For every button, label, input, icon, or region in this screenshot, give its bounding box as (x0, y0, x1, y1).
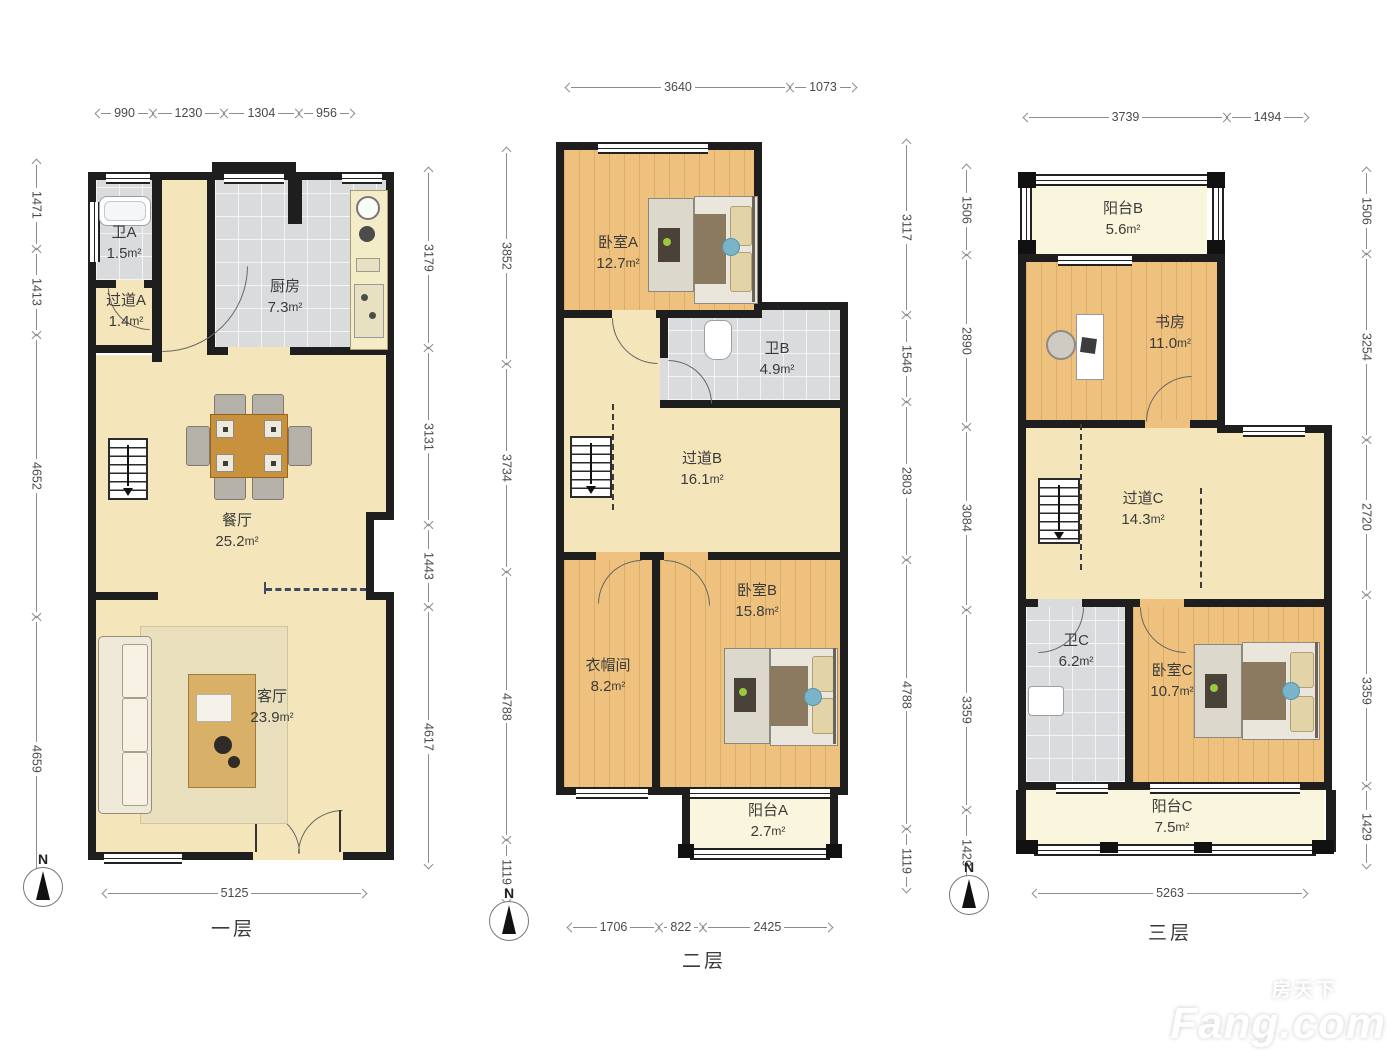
dim-line (1366, 708, 1367, 782)
compass-north-label: N (964, 860, 974, 875)
window (1020, 188, 1032, 240)
room-label: 过道C 14.3m² (1121, 488, 1164, 531)
arrow-up-icon (901, 828, 911, 838)
dim-line (906, 244, 907, 310)
room-label: 卧室B 15.8m² (735, 580, 778, 623)
arrow-up-icon (1361, 167, 1371, 177)
dim-value: 956 (313, 107, 340, 120)
wall (556, 310, 762, 318)
dim-value: 3084 (960, 501, 973, 535)
dim-line (695, 87, 785, 88)
dim-value: 2803 (900, 464, 913, 498)
arrow-up-icon (1361, 252, 1371, 262)
dim-value: 1471 (30, 188, 43, 222)
dimension-line-bottom: 17068222425 (568, 920, 832, 934)
arrow-right-icon (1300, 112, 1310, 122)
dim-line (906, 565, 907, 678)
stair-railing (1080, 424, 1082, 570)
dim-value: 3640 (661, 81, 695, 94)
pillar (1016, 840, 1038, 854)
dim-line (966, 260, 967, 324)
room-area: 7.5m² (1152, 817, 1193, 838)
dim-line (36, 340, 37, 459)
dim-value: 1413 (30, 275, 43, 309)
dim-segment: 956 (299, 107, 354, 120)
pillar (1194, 842, 1212, 853)
room-area: 1.4m² (106, 311, 146, 332)
arrow-right-icon (346, 108, 356, 118)
wall (1018, 420, 1225, 428)
dim-segment: 1546 (900, 315, 913, 402)
room-name: 衣帽间 (585, 655, 630, 676)
window (1056, 782, 1108, 794)
table-seat-icon (264, 420, 282, 438)
arrow-up-icon (961, 809, 971, 819)
arrow-up-icon (31, 159, 41, 169)
stove-dot-icon (361, 294, 368, 301)
room-name: 卧室C (1150, 660, 1193, 681)
room-label: 过道B 16.1m² (680, 448, 723, 491)
door-gap (612, 310, 656, 318)
door-gap (660, 358, 668, 400)
arrow-left-icon (297, 108, 307, 118)
arrow-left-icon (789, 82, 799, 92)
dim-line (906, 407, 907, 464)
dim-line (506, 369, 507, 452)
window (576, 787, 648, 799)
dim-value: 3179 (422, 241, 435, 275)
arrow-right-icon (1299, 888, 1309, 898)
dim-segment: 2425 (703, 921, 832, 934)
dim-value: 3254 (1360, 330, 1373, 364)
dimension-line-top: 37391494 (1024, 110, 1308, 124)
pillar (826, 844, 842, 858)
table-seat-icon (216, 420, 234, 438)
dim-value: 1506 (1360, 194, 1373, 228)
stairs-icon (1038, 478, 1080, 544)
dim-value: 1506 (960, 193, 973, 227)
wall (840, 302, 848, 795)
dim-segment: 3739 (1024, 111, 1227, 124)
room-name: 阳台A (748, 800, 788, 821)
floor-label: 一层 (211, 914, 255, 941)
pillar (678, 844, 694, 858)
floor-plan-sheet: 卫A 1.5m² 过道A 1.4m² 厨房 7.3m² 餐厅 25.2m² 客厅… (0, 0, 1400, 1050)
dim-segment: 3852 (500, 148, 513, 364)
door-gap (1038, 599, 1082, 607)
door-gap (116, 280, 144, 288)
room-name: 客厅 (250, 686, 293, 707)
floor-label: 二层 (682, 946, 726, 973)
dim-value: 1429 (1360, 810, 1373, 844)
arrow-left-icon (95, 108, 105, 118)
room-label: 阳台B 5.6m² (1103, 198, 1143, 241)
dim-line (906, 498, 907, 555)
balcony-opening (690, 787, 830, 799)
sink-icon (1028, 686, 1064, 716)
room-area: 15.8m² (735, 601, 778, 622)
dim-value: 5263 (1153, 887, 1187, 900)
pillar (1018, 172, 1036, 188)
pillow-icon (812, 656, 834, 692)
dim-value: 4652 (30, 459, 43, 493)
arrow-up-icon (961, 164, 971, 174)
dim-value: 3131 (422, 420, 435, 454)
room-name: 过道A (106, 290, 146, 311)
dim-line (1366, 445, 1367, 501)
dim-segment: 2720 (1360, 440, 1373, 595)
arrow-left-icon (657, 922, 667, 932)
door-leaf (339, 810, 341, 852)
room-label: 卧室C 10.7m² (1150, 660, 1193, 703)
stove-icon (354, 284, 384, 338)
dim-segment: 4652 (30, 335, 43, 617)
headboard-icon (833, 648, 836, 744)
stairs-icon (570, 436, 612, 498)
arrow-up-icon (901, 314, 911, 324)
arrow-left-icon (222, 108, 232, 118)
wall (1217, 254, 1225, 428)
dimension-line-top: 36401073 (566, 80, 856, 94)
dim-line (1142, 117, 1222, 118)
arrow-left-icon (565, 82, 575, 92)
room-name: 过道C (1121, 488, 1164, 509)
arrow-left-icon (701, 922, 711, 932)
dim-segment: 1706 (568, 921, 659, 934)
toilet-icon (704, 320, 732, 360)
arrow-up-icon (501, 571, 511, 581)
room-label: 阳台A 2.7m² (748, 800, 788, 843)
dim-line (428, 353, 429, 420)
wall (88, 172, 96, 860)
dim-line (506, 273, 507, 359)
window (104, 852, 182, 864)
arrow-left-icon (102, 888, 112, 898)
dim-segment: 1443 (422, 525, 435, 607)
wall (366, 512, 374, 600)
dim-line (506, 485, 507, 568)
dim-value: 3734 (500, 451, 513, 485)
room-area: 7.3m² (268, 297, 303, 318)
dimension-line-right: 15063254272033591429 (1358, 168, 1374, 868)
wardrobe-dot-icon (1210, 684, 1218, 692)
room-name: 厨房 (268, 276, 303, 297)
pillar (1100, 842, 1118, 853)
wall (88, 345, 160, 353)
room-label: 卧室A 12.7m² (596, 232, 639, 275)
room-label: 衣帽间 8.2m² (585, 655, 630, 698)
notch (374, 520, 386, 592)
compass: N (488, 886, 530, 941)
dim-value: 1119 (900, 845, 913, 877)
room-area: 23.9m² (250, 707, 293, 728)
dim-line (506, 723, 507, 835)
dimension-line-right: 3179313114434617 (420, 168, 436, 868)
dim-segment: 3359 (1360, 595, 1373, 787)
dimension-line-left: 15062890308433591429 (958, 165, 974, 895)
dim-line (906, 145, 907, 211)
table-seat-icon (264, 454, 282, 472)
bed-accent-icon (804, 688, 822, 706)
dim-value: 3359 (1360, 674, 1373, 708)
room-label: 书房 11.0m² (1149, 312, 1191, 355)
dim-segment: 3734 (500, 364, 513, 573)
room-name: 过道B (680, 448, 723, 469)
dim-value: 990 (111, 107, 138, 120)
dim-segment: 3254 (1360, 254, 1373, 440)
wall (1125, 599, 1133, 790)
compass-icon (23, 867, 63, 907)
arrow-up-icon (501, 147, 511, 157)
arrow-up-icon (1361, 785, 1371, 795)
window (224, 172, 284, 184)
room-name: 卫C (1059, 630, 1094, 651)
dim-line (966, 432, 967, 502)
chair-icon (186, 426, 210, 466)
arrow-down-icon (901, 884, 911, 894)
dim-line (1366, 259, 1367, 330)
dim-line (906, 711, 907, 824)
dim-value: 4617 (422, 720, 435, 754)
wall (152, 172, 162, 362)
sofa-cushion-icon (122, 698, 148, 752)
dim-segment: 822 (659, 921, 703, 934)
room-label: 阳台C 7.5m² (1152, 796, 1193, 839)
room-label: 卫B 4.9m² (760, 338, 795, 381)
arrow-right-icon (824, 922, 834, 932)
dim-line (428, 754, 429, 863)
door-gap (228, 347, 290, 355)
dim-segment: 4617 (422, 607, 435, 868)
arrow-left-icon (1225, 112, 1235, 122)
dim-segment: 1230 (153, 107, 224, 120)
watermark-cn: 房天下 (1170, 981, 1338, 1000)
bed-blanket-icon (770, 666, 808, 726)
dim-value: 1443 (422, 549, 435, 583)
chair-icon (252, 476, 284, 500)
dim-line (571, 87, 661, 88)
dim-line (428, 453, 429, 520)
dimension-line-right: 31171546280347881119 (898, 140, 914, 892)
dim-value: 2425 (750, 921, 784, 934)
dim-segment: 4788 (500, 572, 513, 840)
dim-value: 1494 (1251, 111, 1285, 124)
wardrobe-dot-icon (663, 238, 671, 246)
dim-line (506, 577, 507, 689)
door-gap (664, 552, 708, 560)
dimension-line-top: 99012301304956 (96, 106, 354, 120)
arrow-up-icon (501, 362, 511, 372)
dim-value: 822 (667, 921, 694, 934)
room-name: 餐厅 (215, 510, 258, 531)
arrow-up-icon (31, 334, 41, 344)
dimension-line-left: 1471141346524659 (28, 160, 44, 900)
compass-north-label: N (504, 886, 514, 901)
dim-line (108, 893, 218, 894)
wall (386, 592, 394, 860)
room-area: 2.7m² (748, 821, 788, 842)
dim-segment: 990 (96, 107, 153, 120)
dim-segment: 2890 (960, 255, 973, 427)
sink-icon (356, 196, 380, 220)
tray-icon (196, 694, 232, 722)
room-area: 8.2m² (585, 676, 630, 697)
dim-value: 4788 (500, 690, 513, 724)
stair-railing (612, 404, 614, 510)
room-area: 14.3m² (1121, 509, 1164, 530)
arrow-up-icon (961, 253, 971, 263)
dim-segment: 4788 (900, 560, 913, 829)
dim-line (966, 535, 967, 605)
stove-dot-icon (369, 312, 376, 319)
window (1058, 254, 1132, 266)
watermark: 房天下 Fang.com (1170, 981, 1386, 1046)
chair-icon (214, 476, 246, 500)
compass-icon (949, 875, 989, 915)
dim-value: 3852 (500, 239, 513, 273)
burner-icon (359, 226, 375, 242)
wardrobe-dot-icon (739, 688, 747, 696)
dim-segment: 1073 (790, 81, 856, 94)
room-name: 阳台B (1103, 198, 1143, 219)
room-area: 16.1m² (680, 469, 723, 490)
arrow-up-icon (901, 139, 911, 149)
dim-line (966, 615, 967, 693)
dimension-line-bottom: 5263 (1033, 886, 1307, 900)
dim-value: 1119 (500, 856, 513, 888)
counter-item-icon (356, 258, 380, 272)
bed-blanket-icon (1242, 662, 1286, 720)
dim-value: 4659 (30, 742, 43, 776)
dim-line (251, 893, 361, 894)
room-name: 卫A (107, 222, 142, 243)
compass-icon (489, 901, 529, 941)
wall (754, 302, 848, 310)
room-name: 阳台C (1152, 796, 1193, 817)
arrow-up-icon (423, 605, 433, 615)
dim-line (966, 358, 967, 422)
room-label: 客厅 23.9m² (250, 686, 293, 729)
dim-segment: 1413 (30, 249, 43, 335)
dim-segment: 1429 (1360, 786, 1373, 868)
dim-segment: 1506 (960, 165, 973, 255)
dim-line (36, 493, 37, 612)
dim-segment: 5125 (103, 887, 366, 900)
headboard-icon (752, 196, 755, 302)
dim-line (708, 927, 751, 928)
arrow-down-icon (423, 860, 433, 870)
dim-line (1366, 534, 1367, 590)
dim-segment: 1119 (900, 829, 913, 892)
arrow-up-icon (901, 401, 911, 411)
bed-accent-icon (1282, 682, 1300, 700)
dim-value: 4788 (900, 678, 913, 712)
room-area: 12.7m² (596, 253, 639, 274)
arrow-up-icon (961, 425, 971, 435)
stairs-icon (108, 438, 148, 500)
dim-line (1038, 893, 1153, 894)
arrow-up-icon (501, 839, 511, 849)
dim-segment: 3359 (960, 610, 973, 810)
window (1036, 174, 1207, 186)
dashed-tick (264, 582, 266, 594)
pillar (1312, 840, 1334, 854)
arrow-up-icon (423, 167, 433, 177)
dim-line (1366, 600, 1367, 674)
headboard-icon (1315, 642, 1318, 738)
dimension-line-bottom: 5125 (103, 886, 366, 900)
arrow-left-icon (1032, 888, 1042, 898)
dim-line (1029, 117, 1109, 118)
dashed-boundary (266, 588, 366, 591)
room-area: 5.6m² (1103, 219, 1143, 240)
sofa-cushion-icon (122, 752, 148, 806)
wall (556, 142, 564, 795)
dim-segment: 3179 (422, 168, 435, 348)
dim-line (966, 727, 967, 805)
railing (1200, 488, 1202, 588)
arrow-right-icon (358, 888, 368, 898)
arrow-down-icon (1361, 860, 1371, 870)
arrow-up-icon (423, 524, 433, 534)
chair-icon (288, 426, 312, 466)
room-label: 厨房 7.3m² (268, 276, 303, 319)
bed-accent-icon (722, 238, 740, 256)
door-gap (596, 552, 640, 560)
room-label: 卫A 1.5m² (107, 222, 142, 265)
arrow-up-icon (961, 609, 971, 619)
dim-segment: 2803 (900, 402, 913, 560)
dim-value: 2890 (960, 324, 973, 358)
arrow-up-icon (901, 558, 911, 568)
arrow-up-icon (31, 616, 41, 626)
watermark-logo: Fang.com (1170, 1002, 1386, 1046)
compass: N (22, 852, 64, 907)
room-label: 过道A 1.4m² (106, 290, 146, 333)
arrow-up-icon (31, 248, 41, 258)
window (1243, 425, 1305, 437)
coffee-table-icon (188, 674, 256, 788)
dim-value: 1304 (244, 107, 278, 120)
room-label: 卫C 6.2m² (1059, 630, 1094, 673)
window (342, 172, 382, 184)
dimension-line-left: 3852373447881119 (498, 148, 514, 903)
arrow-up-icon (1361, 593, 1371, 603)
compass: N (948, 860, 990, 915)
arrow-left-icon (567, 922, 577, 932)
dim-segment: 3640 (566, 81, 790, 94)
pillow-icon (730, 252, 752, 292)
dim-line (428, 173, 429, 241)
dim-value: 1546 (900, 342, 913, 376)
cutout (762, 142, 848, 302)
teapot-icon (228, 756, 240, 768)
bed-blanket-icon (694, 214, 726, 284)
desk-chair-icon (1046, 330, 1076, 360)
door-gap (1140, 599, 1184, 607)
dim-value: 5125 (218, 887, 252, 900)
floor-label: 三层 (1148, 918, 1192, 945)
dim-segment: 1494 (1227, 111, 1308, 124)
dim-line (784, 927, 827, 928)
pillow-icon (1290, 696, 1314, 732)
arrow-right-icon (848, 82, 858, 92)
dim-segment: 1304 (224, 107, 299, 120)
room-name: 书房 (1149, 312, 1191, 333)
table-seat-icon (216, 454, 234, 472)
dim-value: 1706 (597, 921, 631, 934)
teapot-icon (214, 736, 232, 754)
